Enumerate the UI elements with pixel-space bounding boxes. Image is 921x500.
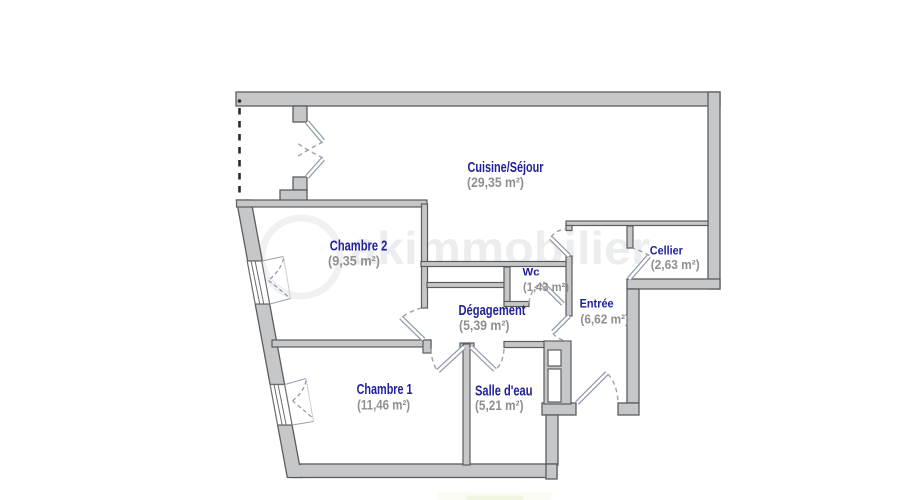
svg-text:(1,43 m²): (1,43 m²) [523, 280, 569, 294]
svg-text:Chambre 2: Chambre 2 [330, 239, 388, 255]
svg-text:(29,35 m²): (29,35 m²) [467, 175, 524, 190]
svg-text:(5,21 m²): (5,21 m²) [475, 398, 524, 413]
svg-text:Dégagement: Dégagement [459, 303, 526, 319]
svg-text:(9,35 m²): (9,35 m²) [328, 254, 380, 269]
svg-text:Chambre 1: Chambre 1 [357, 382, 413, 398]
svg-text:Wc: Wc [523, 267, 540, 279]
svg-text:Cuisine/Séjour: Cuisine/Séjour [468, 160, 544, 176]
svg-text:(11,46 m²): (11,46 m²) [357, 398, 410, 413]
svg-text:Cellier: Cellier [650, 243, 683, 257]
svg-text:Entrée: Entrée [580, 296, 614, 310]
svg-text:(6,62 m²): (6,62 m²) [580, 312, 629, 327]
svg-text:(2,63 m²): (2,63 m²) [651, 258, 700, 272]
svg-text:(5,39 m²): (5,39 m²) [459, 318, 510, 333]
